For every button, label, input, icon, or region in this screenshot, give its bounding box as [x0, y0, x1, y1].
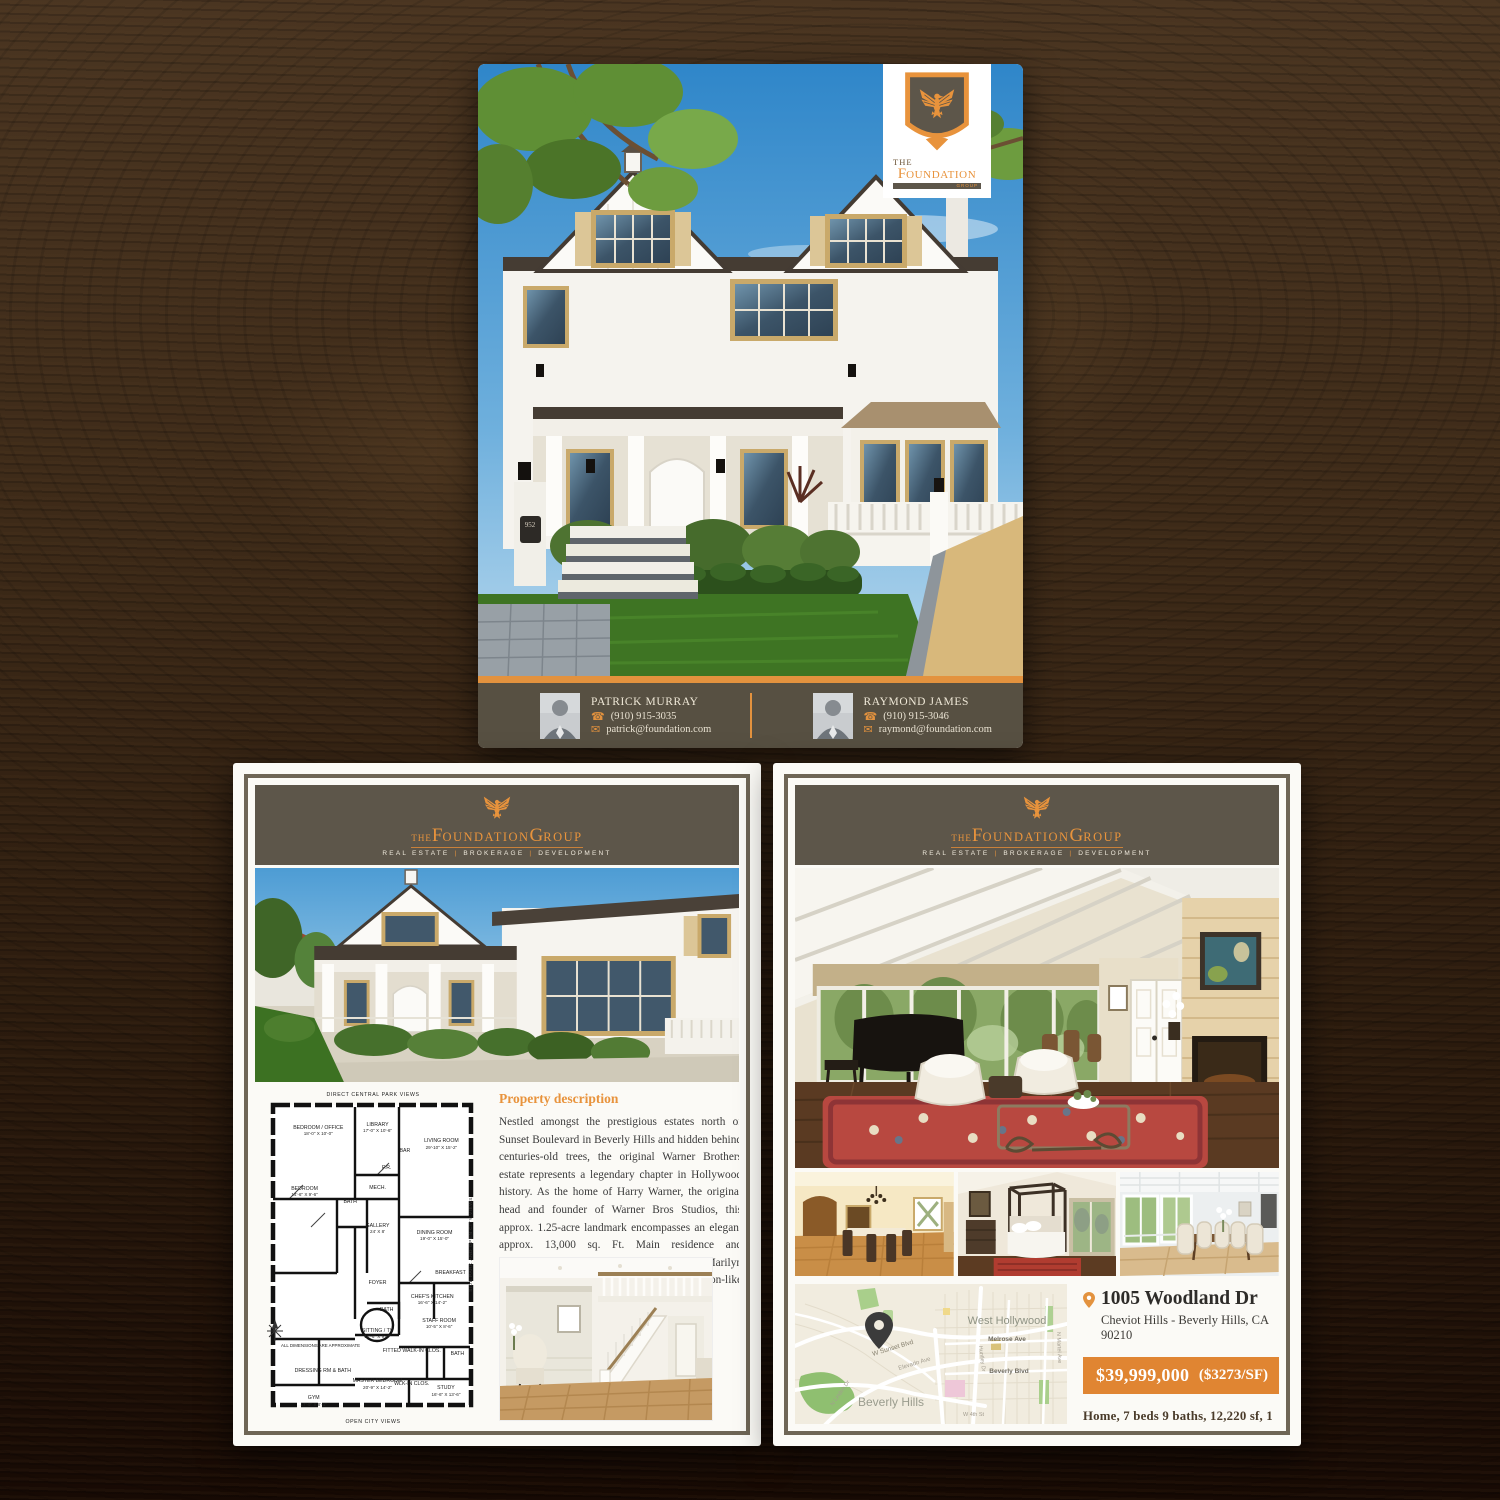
foyer-interior-photo	[499, 1257, 713, 1421]
agent-card: RAYMOND JAMES ☎(910) 915-3046 ✉raymond@f…	[751, 693, 1024, 739]
floorplan-room-label: BREAKFAST	[435, 1270, 466, 1277]
map-area-beverly-hills: Beverly Hills	[858, 1395, 924, 1409]
brand-tagline: REAL ESTATE|BROKERAGE|DEVELOPMENT	[382, 850, 611, 857]
floorplan-room-label: STUDY16'-6" X 13'-6"	[431, 1385, 460, 1397]
map-street-4th: W 4th St	[963, 1412, 985, 1418]
flyer-cover-page: 952 THE FOUNDATION GROUP PATRICK MURRAY …	[478, 64, 1023, 748]
floor-plan: DIRECT CENTRAL PARK VIEWS OPEN CITY VIEW…	[259, 1087, 487, 1424]
house-angle-photo	[255, 868, 739, 1082]
brand-tagline: REAL ESTATE|BROKERAGE|DEVELOPMENT	[922, 850, 1151, 857]
map-area-west-hollywood: West Hollywood	[968, 1315, 1047, 1327]
map-street-beverly-blvd: Beverly Blvd	[989, 1368, 1028, 1375]
floorplan-room-label: P.R.	[382, 1165, 391, 1172]
footer-divider	[750, 693, 752, 738]
brand-wordmark: THEFOUNDATIONGROUP	[411, 826, 582, 848]
breakfast-room-photo	[1120, 1172, 1279, 1276]
floorplan-room-label: DINING ROOM19'-0" X 15'-0"	[417, 1230, 453, 1242]
agent-card: PATRICK MURRAY ☎(910) 915-3035 ✉patrick@…	[478, 693, 751, 739]
brand-shield-eagle-icon	[901, 72, 973, 156]
bedroom-photo	[958, 1172, 1117, 1276]
floorplan-room-label: BEDROOM14'-6" X 9'-6"	[291, 1186, 318, 1198]
description-heading: Property description	[499, 1091, 739, 1107]
email-icon: ✉	[591, 724, 600, 735]
floorplan-room-label: SITTING / TV13'-6" X 9'-4"	[362, 1328, 393, 1340]
phone-icon: ☎	[591, 711, 605, 722]
listing-price: $39,999,000	[1096, 1365, 1189, 1386]
flyer-listing-page: THEFOUNDATIONGROUP REAL ESTATE|BROKERAGE…	[773, 763, 1301, 1446]
floorplan-room-label: BEDROOM / OFFICE18'-0" X 10'-0"	[293, 1125, 343, 1137]
floorplan-room-label: CHEF'S KITCHEN16'-6" X 14'-2"	[411, 1294, 454, 1306]
email-icon: ✉	[864, 724, 873, 735]
eagle-icon	[480, 793, 514, 823]
page-frame: THEFOUNDATIONGROUP REAL ESTATE|BROKERAGE…	[784, 774, 1290, 1435]
floorplan-room-label: GALLERY24' X 8'	[366, 1223, 390, 1235]
floorplan-side-note: SIDE PARK AND OPEN CITY VIEWS	[469, 1198, 474, 1293]
phone-icon: ☎	[864, 711, 878, 722]
floorplan-room-label: MECH.	[369, 1185, 386, 1192]
brand-header: THEFOUNDATIONGROUP REAL ESTATE|BROKERAGE…	[255, 785, 739, 865]
agent-email: raymond@foundation.com	[879, 724, 992, 735]
agent-name: PATRICK MURRAY	[591, 696, 711, 708]
map-street-martel: N Martel Ave	[1055, 1332, 1062, 1364]
dining-room-photo	[795, 1172, 954, 1276]
floorplan-room-label: BATH	[343, 1199, 356, 1206]
brand-group-bar: GROUP	[893, 183, 981, 189]
floorplan-room-label: GYM17'-9" X 8'-1"	[300, 1395, 326, 1407]
flyer-floorplan-page: THEFOUNDATIONGROUP REAL ESTATE|BROKERAGE…	[233, 763, 761, 1446]
house-number-plaque: 952	[525, 521, 536, 529]
living-room-photo	[795, 868, 1279, 1168]
brand-group: GROUP	[956, 184, 978, 189]
floorplan-room-label: LIBRARY17'-0" X 10'-6"	[363, 1121, 392, 1133]
accent-stripe	[478, 676, 1023, 683]
agent-phone: (910) 915-3046	[883, 711, 949, 722]
agent-avatar	[813, 693, 853, 739]
agents-footer: PATRICK MURRAY ☎(910) 915-3035 ✉patrick@…	[478, 683, 1023, 748]
wood-table-scene: 952 THE FOUNDATION GROUP PATRICK MURRAY …	[0, 0, 1500, 1500]
listing-summary: Home, 7 beds 9 baths, 12,220 sf, 1 acre …	[1083, 1409, 1279, 1424]
page-frame: THEFOUNDATIONGROUP REAL ESTATE|BROKERAGE…	[244, 774, 750, 1435]
listing-address: 1005 Woodland Dr	[1101, 1289, 1258, 1309]
photo-thumbnails	[795, 1172, 1279, 1276]
floorplan-disclaimer: ALL DIMENSIONS ARE APPROXIMATE	[281, 1343, 360, 1349]
location-map: West Hollywood Beverly Hills Melrose Ave…	[795, 1284, 1067, 1424]
price-banner: $39,999,000 ($3273/SF)	[1083, 1357, 1279, 1394]
brand-header: THEFOUNDATIONGROUP REAL ESTATE|BROKERAGE…	[795, 785, 1279, 865]
floorplan-room-label: FOYER	[369, 1280, 387, 1287]
address-pin-icon	[1083, 1292, 1095, 1308]
listing-location: Cheviot Hills - Beverly Hills, CA 90210	[1101, 1313, 1279, 1343]
brand-foundation: FOUNDATION	[898, 167, 977, 182]
listing-info: 1005 Woodland Dr Cheviot Hills - Beverly…	[1083, 1289, 1279, 1424]
agent-avatar	[540, 693, 580, 739]
floorplan-room-label: BATH	[451, 1351, 464, 1358]
floorplan-room-label: LIVING ROOM29'-10" X 15'-2"	[424, 1138, 459, 1150]
floorplan-room-label: BATH	[380, 1307, 393, 1314]
agent-phone: (910) 915-3035	[611, 711, 677, 722]
floorplan-top-note: DIRECT CENTRAL PARK VIEWS	[326, 1092, 419, 1098]
floorplan-room-label: STAFF ROOM10'-5" X 8'-6"	[422, 1317, 456, 1329]
brand-logo-card: THE FOUNDATION GROUP	[883, 64, 991, 198]
map-street-melrose: Melrose Ave	[988, 1336, 1026, 1343]
floorplan-room-label: BAR	[400, 1148, 411, 1155]
brand-wordmark: THEFOUNDATIONGROUP	[951, 826, 1122, 848]
floorplan-room-label: DRESSING RM & BATH	[295, 1368, 351, 1375]
eagle-icon	[1020, 793, 1054, 823]
agent-name: RAYMOND JAMES	[864, 696, 992, 708]
listing-price-per-sf: ($3273/SF)	[1199, 1367, 1268, 1384]
floorplan-room-label: FITTED WALK-IN CLOS.	[383, 1347, 441, 1354]
floorplan-bottom-note: OPEN CITY VIEWS	[345, 1419, 400, 1424]
floorplan-room-label: WLK-IN CLOS.	[394, 1381, 429, 1388]
agent-email: patrick@foundation.com	[606, 724, 711, 735]
